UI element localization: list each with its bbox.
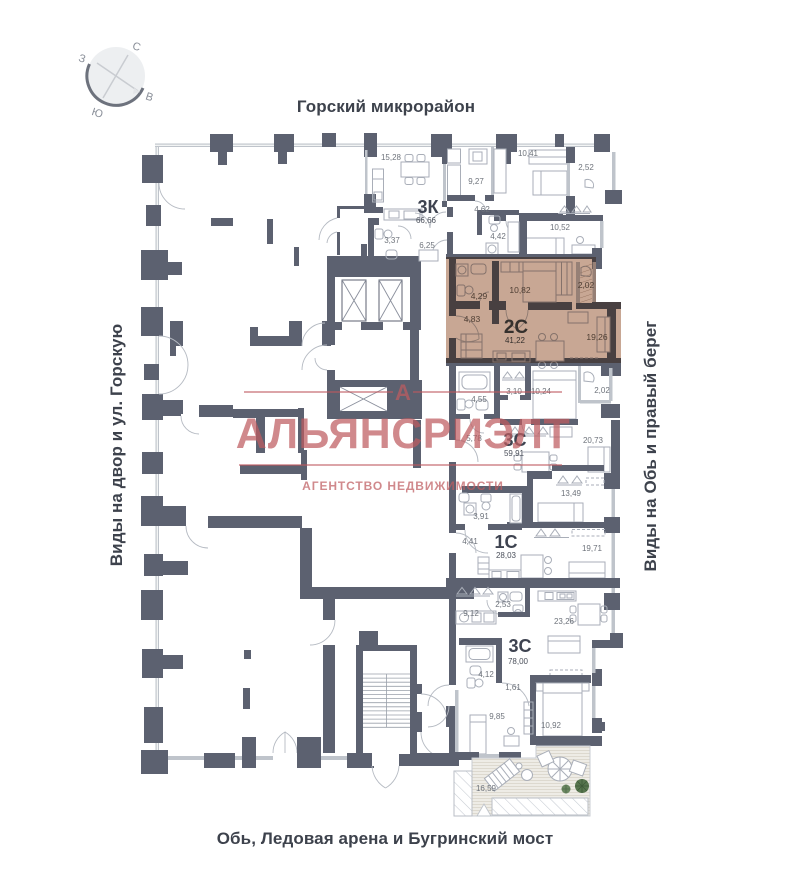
svg-text:23,26: 23,26 — [554, 617, 575, 626]
svg-text:1,61: 1,61 — [505, 683, 521, 692]
svg-text:3С: 3С — [508, 636, 531, 656]
svg-text:1С: 1С — [494, 532, 517, 552]
svg-text:10,82: 10,82 — [509, 285, 531, 295]
svg-text:АГЕНТСТВО НЕДВИЖИМОСТИ: АГЕНТСТВО НЕДВИЖИМОСТИ — [302, 479, 504, 493]
svg-text:41,22: 41,22 — [505, 336, 526, 345]
svg-text:Виды на Обь и правый берег: Виды на Обь и правый берег — [641, 320, 660, 571]
svg-text:10,52: 10,52 — [550, 223, 571, 232]
svg-text:4,41: 4,41 — [462, 537, 478, 546]
svg-text:19,71: 19,71 — [582, 544, 603, 553]
svg-text:19,26: 19,26 — [586, 332, 608, 342]
svg-text:16,59: 16,59 — [476, 784, 497, 793]
svg-text:4,62: 4,62 — [474, 205, 490, 214]
svg-text:9,27: 9,27 — [468, 177, 484, 186]
svg-text:6,25: 6,25 — [419, 241, 435, 250]
svg-text:2С: 2С — [504, 317, 529, 338]
svg-text:3,37: 3,37 — [384, 236, 400, 245]
svg-text:3,91: 3,91 — [473, 512, 489, 521]
svg-text:13,49: 13,49 — [561, 489, 582, 498]
svg-text:10,92: 10,92 — [541, 721, 562, 730]
svg-text:4,42: 4,42 — [490, 232, 506, 241]
svg-text:9,85: 9,85 — [489, 712, 505, 721]
svg-text:4,29: 4,29 — [471, 291, 488, 301]
svg-text:А: А — [395, 380, 411, 405]
svg-text:2,52: 2,52 — [578, 163, 594, 172]
svg-text:66,66: 66,66 — [416, 216, 437, 225]
svg-text:15,28: 15,28 — [381, 153, 402, 162]
svg-text:Горский микрорайон: Горский микрорайон — [297, 97, 475, 116]
svg-text:9,12: 9,12 — [463, 609, 479, 618]
svg-text:2,02: 2,02 — [594, 386, 610, 395]
svg-text:Виды на двор и ул. Горскую: Виды на двор и ул. Горскую — [107, 324, 126, 566]
svg-text:28,03: 28,03 — [496, 551, 517, 560]
svg-text:3К: 3К — [418, 197, 440, 217]
svg-text:20,73: 20,73 — [583, 436, 604, 445]
svg-text:АЛЬЯНСРИЭЛТ: АЛЬЯНСРИЭЛТ — [236, 410, 571, 458]
svg-text:4,55: 4,55 — [471, 395, 487, 404]
svg-text:2,53: 2,53 — [495, 600, 511, 609]
svg-text:4,83: 4,83 — [464, 314, 481, 324]
svg-text:78,00: 78,00 — [508, 657, 529, 666]
svg-text:4,12: 4,12 — [478, 670, 494, 679]
svg-text:Обь, Ледовая арена и Бугрински: Обь, Ледовая арена и Бугринский мост — [217, 829, 554, 848]
svg-text:10,41: 10,41 — [518, 149, 539, 158]
svg-text:2,02: 2,02 — [578, 280, 595, 290]
